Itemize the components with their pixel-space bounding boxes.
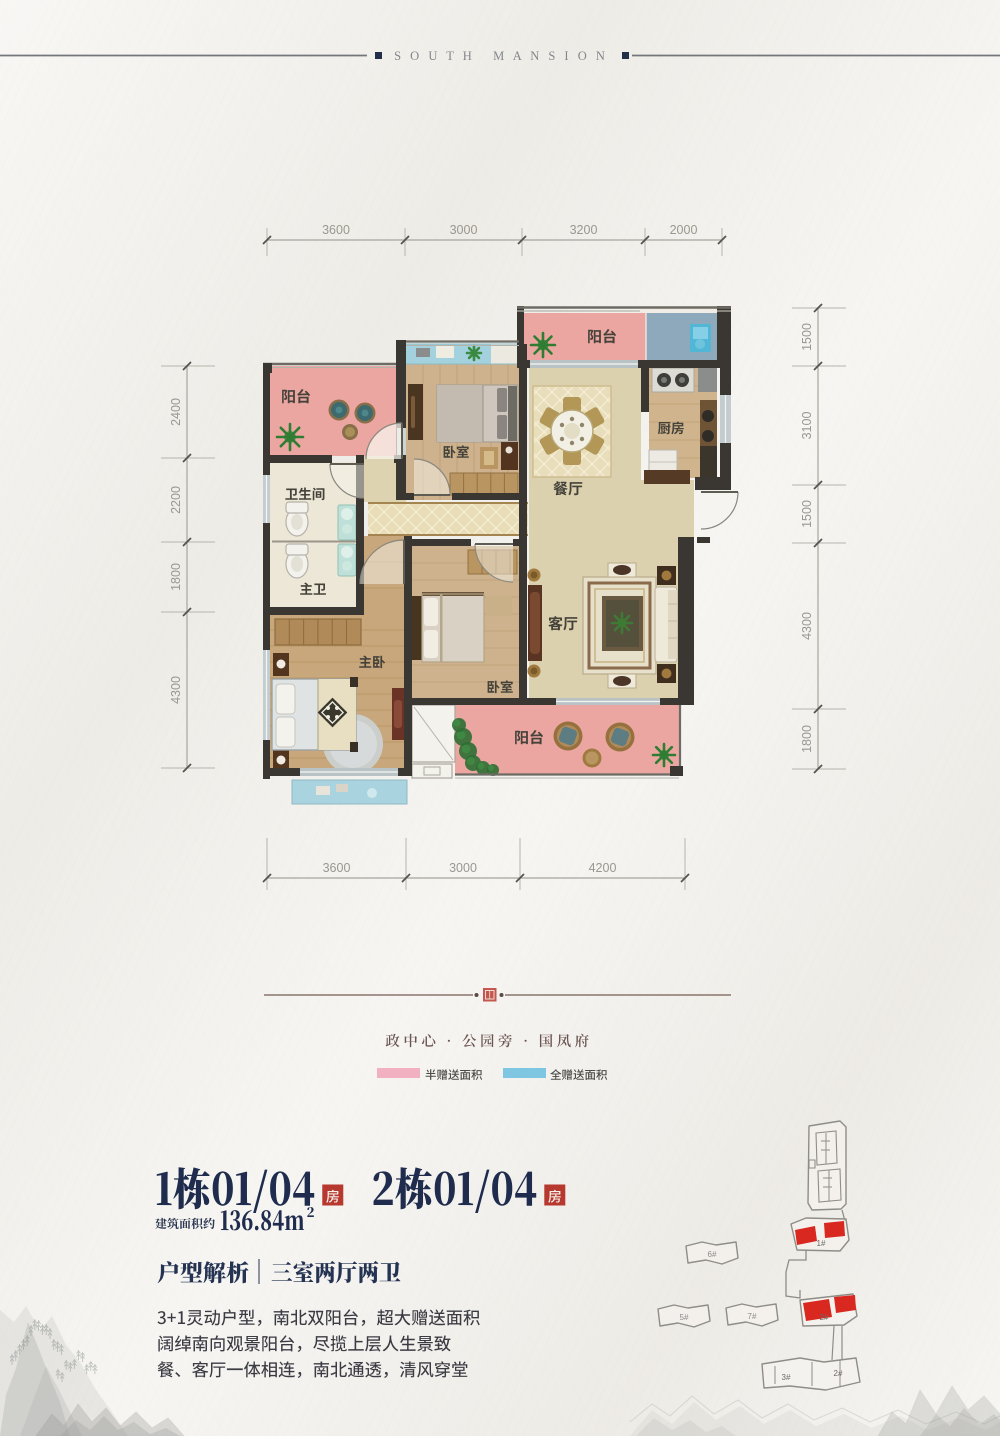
svg-text:3000: 3000	[449, 861, 477, 875]
svg-text:1500: 1500	[800, 500, 814, 528]
svg-text:5#: 5#	[680, 1313, 689, 1322]
svg-text:1800: 1800	[800, 725, 814, 753]
svg-text:3600: 3600	[322, 223, 350, 237]
svg-text:3#: 3#	[782, 1373, 791, 1382]
svg-text:1#: 1#	[817, 1239, 826, 1248]
svg-text:1500: 1500	[800, 323, 814, 351]
svg-text:3000: 3000	[450, 223, 478, 237]
svg-text:4300: 4300	[169, 676, 183, 704]
svg-text:4300: 4300	[800, 612, 814, 640]
svg-text:3200: 3200	[570, 223, 598, 237]
svg-text:2200: 2200	[169, 486, 183, 514]
svg-text:7#: 7#	[748, 1312, 757, 1321]
svg-text:2400: 2400	[169, 398, 183, 426]
svg-text:2#: 2#	[834, 1369, 843, 1378]
svg-text:4200: 4200	[589, 861, 617, 875]
svg-text:3600: 3600	[323, 861, 351, 875]
svg-text:S O U T H M A N S I O N: S O U T H M A N S I O N	[394, 49, 608, 63]
svg-text:6#: 6#	[708, 1250, 717, 1259]
svg-text:1800: 1800	[169, 563, 183, 591]
svg-text:3100: 3100	[800, 412, 814, 440]
svg-text:2#: 2#	[820, 1313, 829, 1322]
svg-text:2000: 2000	[670, 223, 698, 237]
